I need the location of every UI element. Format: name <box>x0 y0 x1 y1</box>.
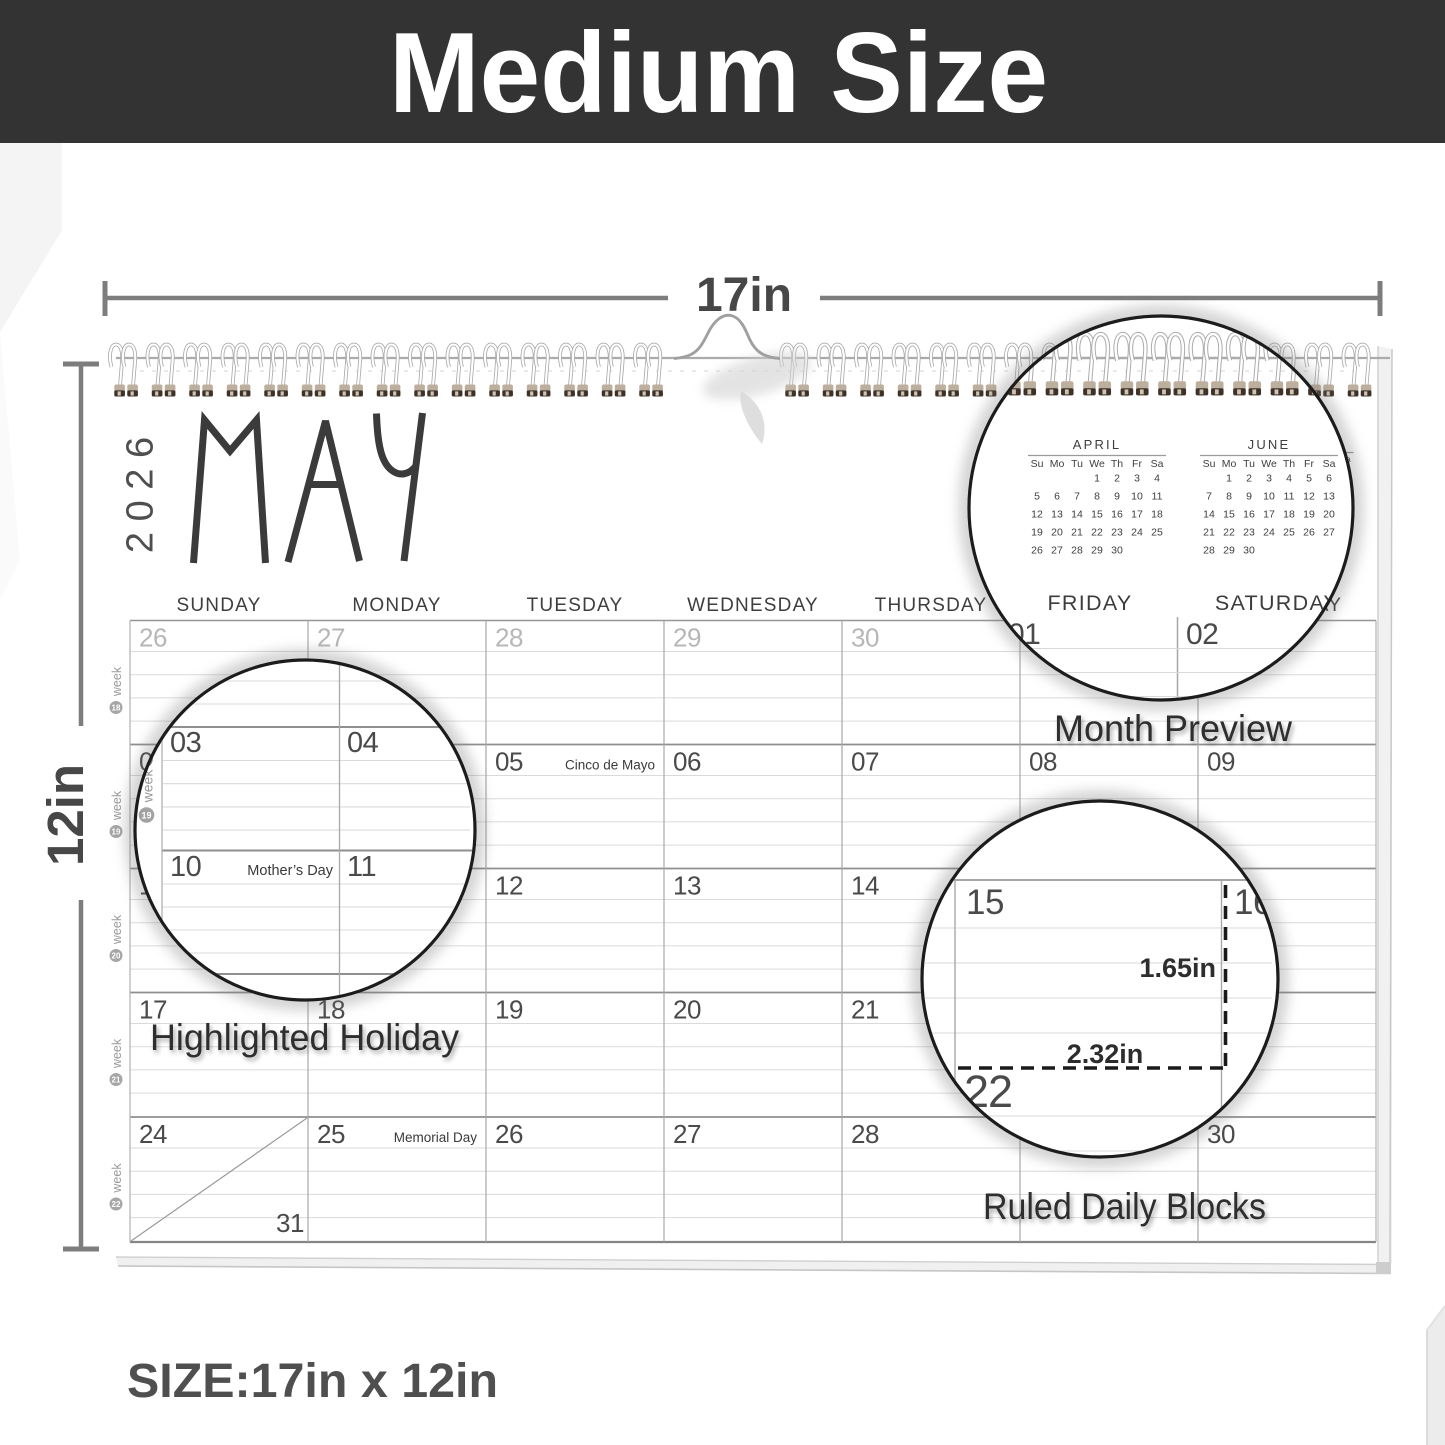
svg-text:week: week <box>110 1163 124 1194</box>
svg-text:Th: Th <box>1111 458 1123 470</box>
svg-text:19: 19 <box>1031 527 1043 539</box>
svg-text:31: 31 <box>276 1208 304 1238</box>
svg-text:15: 15 <box>966 883 1004 922</box>
svg-text:29: 29 <box>673 623 701 653</box>
svg-text:We: We <box>1261 458 1277 470</box>
svg-text:28: 28 <box>1071 545 1083 557</box>
svg-text:Highlighted Holiday: Highlighted Holiday <box>150 1016 459 1058</box>
svg-text:SIZE:17in x 12in: SIZE:17in x 12in <box>127 1355 498 1408</box>
svg-text:23: 23 <box>1111 527 1123 539</box>
svg-text:week: week <box>110 914 124 945</box>
svg-text:TUESDAY: TUESDAY <box>527 595 624 616</box>
svg-text:Mo: Mo <box>1050 458 1065 470</box>
svg-text:WEDNESDAY: WEDNESDAY <box>687 595 819 616</box>
svg-text:12: 12 <box>495 871 523 901</box>
svg-text:08: 08 <box>1029 747 1057 777</box>
svg-text:week: week <box>110 790 124 821</box>
svg-text:20: 20 <box>1323 509 1335 521</box>
svg-text:27: 27 <box>1323 527 1335 539</box>
svg-text:28: 28 <box>1203 545 1215 557</box>
svg-text:1: 1 <box>1226 473 1232 485</box>
svg-text:20: 20 <box>1051 527 1063 539</box>
svg-text:SUNDAY: SUNDAY <box>177 595 262 616</box>
svg-text:Month Preview: Month Preview <box>1054 707 1293 749</box>
svg-text:27: 27 <box>1051 545 1063 557</box>
svg-text:Fr: Fr <box>1304 458 1314 470</box>
svg-text:19: 19 <box>1303 509 1315 521</box>
svg-text:26: 26 <box>1303 527 1315 539</box>
svg-text:26: 26 <box>139 623 167 653</box>
svg-text:27: 27 <box>673 1119 701 1149</box>
svg-text:19: 19 <box>141 811 151 821</box>
svg-text:2: 2 <box>1114 473 1120 485</box>
svg-text:14: 14 <box>1203 509 1215 521</box>
svg-text:11: 11 <box>1284 491 1295 503</box>
svg-text:25: 25 <box>1151 527 1163 539</box>
svg-text:Memorial Day: Memorial Day <box>394 1130 478 1145</box>
svg-text:04: 04 <box>347 727 379 759</box>
svg-text:Fr: Fr <box>1132 458 1142 470</box>
svg-text:28: 28 <box>851 1119 879 1149</box>
svg-text:24: 24 <box>1131 527 1143 539</box>
svg-text:24: 24 <box>1263 527 1275 539</box>
svg-text:18: 18 <box>1151 509 1163 521</box>
svg-text:11: 11 <box>347 851 376 883</box>
svg-text:12in: 12in <box>37 764 94 866</box>
svg-text:13: 13 <box>673 871 701 901</box>
svg-text:2.32in: 2.32in <box>1067 1039 1144 1069</box>
svg-text:9: 9 <box>1114 491 1120 503</box>
svg-text:1.65in: 1.65in <box>1139 953 1216 983</box>
svg-text:13: 13 <box>1323 491 1335 503</box>
svg-text:7: 7 <box>1206 491 1212 503</box>
svg-text:Th: Th <box>1283 458 1295 470</box>
svg-text:4: 4 <box>1154 473 1160 485</box>
svg-text:13: 13 <box>1051 509 1063 521</box>
svg-text:Mo: Mo <box>1222 458 1237 470</box>
svg-text:17: 17 <box>1263 509 1275 521</box>
svg-text:17in: 17in <box>696 269 792 322</box>
svg-text:8: 8 <box>1094 491 1100 503</box>
svg-text:27: 27 <box>317 623 345 653</box>
svg-text:APRIL: APRIL <box>1073 437 1122 452</box>
svg-text:3: 3 <box>1134 473 1140 485</box>
svg-text:21: 21 <box>1071 527 1083 539</box>
svg-text:12: 12 <box>1031 509 1043 521</box>
svg-text:11: 11 <box>1152 491 1163 503</box>
svg-text:Tu: Tu <box>1071 458 1083 470</box>
svg-text:Su: Su <box>1203 458 1216 470</box>
svg-text:14: 14 <box>1071 509 1083 521</box>
svg-text:12: 12 <box>1303 491 1315 503</box>
svg-text:Sa: Sa <box>1151 458 1164 470</box>
svg-text:Cinco de Mayo: Cinco de Mayo <box>565 758 655 773</box>
svg-text:20: 20 <box>673 995 701 1025</box>
svg-text:25: 25 <box>317 1119 345 1149</box>
svg-text:Su: Su <box>1031 458 1044 470</box>
svg-text:10: 10 <box>1263 491 1275 503</box>
svg-text:8: 8 <box>1226 491 1232 503</box>
svg-text:03: 03 <box>170 727 201 759</box>
svg-text:JUNE: JUNE <box>1248 437 1291 452</box>
svg-text:Medium Size: Medium Size <box>389 10 1048 137</box>
svg-text:Mother’s Day: Mother’s Day <box>247 863 333 879</box>
svg-text:THURSDAY: THURSDAY <box>875 595 988 616</box>
svg-text:10: 10 <box>1131 491 1143 503</box>
svg-text:28: 28 <box>495 623 523 653</box>
svg-text:week: week <box>110 666 124 697</box>
svg-text:17: 17 <box>1131 509 1143 521</box>
svg-text:2: 2 <box>1246 473 1252 485</box>
svg-text:Ruled Daily Blocks: Ruled Daily Blocks <box>983 1185 1266 1227</box>
svg-text:6: 6 <box>1054 491 1060 503</box>
svg-text:9: 9 <box>1246 491 1252 503</box>
svg-text:26: 26 <box>495 1119 523 1149</box>
svg-text:18: 18 <box>112 704 121 713</box>
svg-text:22: 22 <box>1223 527 1235 539</box>
svg-text:16: 16 <box>1111 509 1123 521</box>
svg-text:02: 02 <box>1186 618 1218 651</box>
svg-text:20: 20 <box>112 952 121 961</box>
svg-text:7: 7 <box>1074 491 1080 503</box>
svg-text:15: 15 <box>1091 509 1103 521</box>
svg-text:21: 21 <box>851 995 879 1025</box>
svg-text:30: 30 <box>851 623 879 653</box>
svg-text:29: 29 <box>1091 545 1103 557</box>
svg-text:19: 19 <box>495 995 523 1025</box>
svg-text:MONDAY: MONDAY <box>352 595 441 616</box>
svg-text:18: 18 <box>1283 509 1295 521</box>
svg-text:14: 14 <box>851 871 879 901</box>
svg-text:We: We <box>1089 458 1105 470</box>
svg-text:Sa: Sa <box>1323 458 1336 470</box>
svg-text:23: 23 <box>1243 527 1255 539</box>
svg-text:21: 21 <box>1203 527 1215 539</box>
svg-text:22: 22 <box>112 1200 121 1209</box>
svg-text:2 0 2 6: 2 0 2 6 <box>120 437 162 553</box>
svg-text:30: 30 <box>1243 545 1255 557</box>
svg-text:21: 21 <box>112 1076 121 1085</box>
svg-text:5: 5 <box>1034 491 1040 503</box>
svg-text:29: 29 <box>1223 545 1235 557</box>
svg-text:26: 26 <box>1031 545 1043 557</box>
svg-text:FRIDAY: FRIDAY <box>1047 591 1132 615</box>
svg-text:4: 4 <box>1286 473 1292 485</box>
svg-text:07: 07 <box>851 747 879 777</box>
svg-text:19: 19 <box>112 828 121 837</box>
svg-text:30: 30 <box>1111 545 1123 557</box>
svg-text:SATURDAY: SATURDAY <box>1215 591 1339 615</box>
svg-text:15: 15 <box>1223 509 1235 521</box>
svg-text:1: 1 <box>1094 473 1100 485</box>
svg-text:25: 25 <box>1283 527 1295 539</box>
svg-text:06: 06 <box>673 747 701 777</box>
svg-text:3: 3 <box>1266 473 1272 485</box>
svg-text:5: 5 <box>1306 473 1312 485</box>
svg-text:09: 09 <box>1207 747 1235 777</box>
svg-text:05: 05 <box>495 747 523 777</box>
svg-text:16: 16 <box>1243 509 1255 521</box>
svg-text:6: 6 <box>1326 473 1332 485</box>
svg-text:Tu: Tu <box>1243 458 1255 470</box>
svg-text:week: week <box>110 1038 124 1069</box>
svg-text:24: 24 <box>139 1119 167 1149</box>
svg-text:10: 10 <box>170 851 201 883</box>
svg-text:22: 22 <box>1091 527 1103 539</box>
